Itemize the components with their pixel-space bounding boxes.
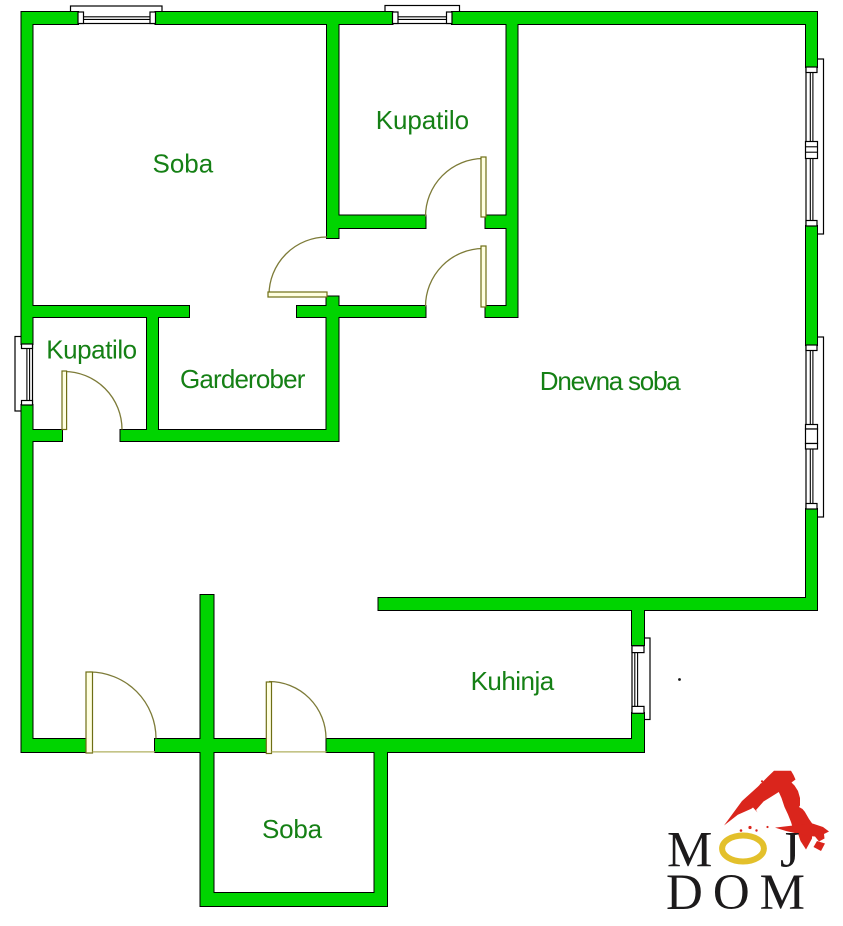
svg-text:Kupatilo: Kupatilo (46, 334, 137, 364)
svg-text:DOM: DOM (666, 865, 815, 921)
svg-text:Soba: Soba (262, 814, 323, 844)
svg-text:Soba: Soba (153, 149, 214, 179)
svg-text:Kuhinja: Kuhinja (471, 666, 555, 696)
svg-text:Kupatilo: Kupatilo (376, 105, 469, 135)
svg-text:Dnevna soba: Dnevna soba (540, 366, 681, 396)
svg-text:Garderober: Garderober (180, 364, 306, 394)
